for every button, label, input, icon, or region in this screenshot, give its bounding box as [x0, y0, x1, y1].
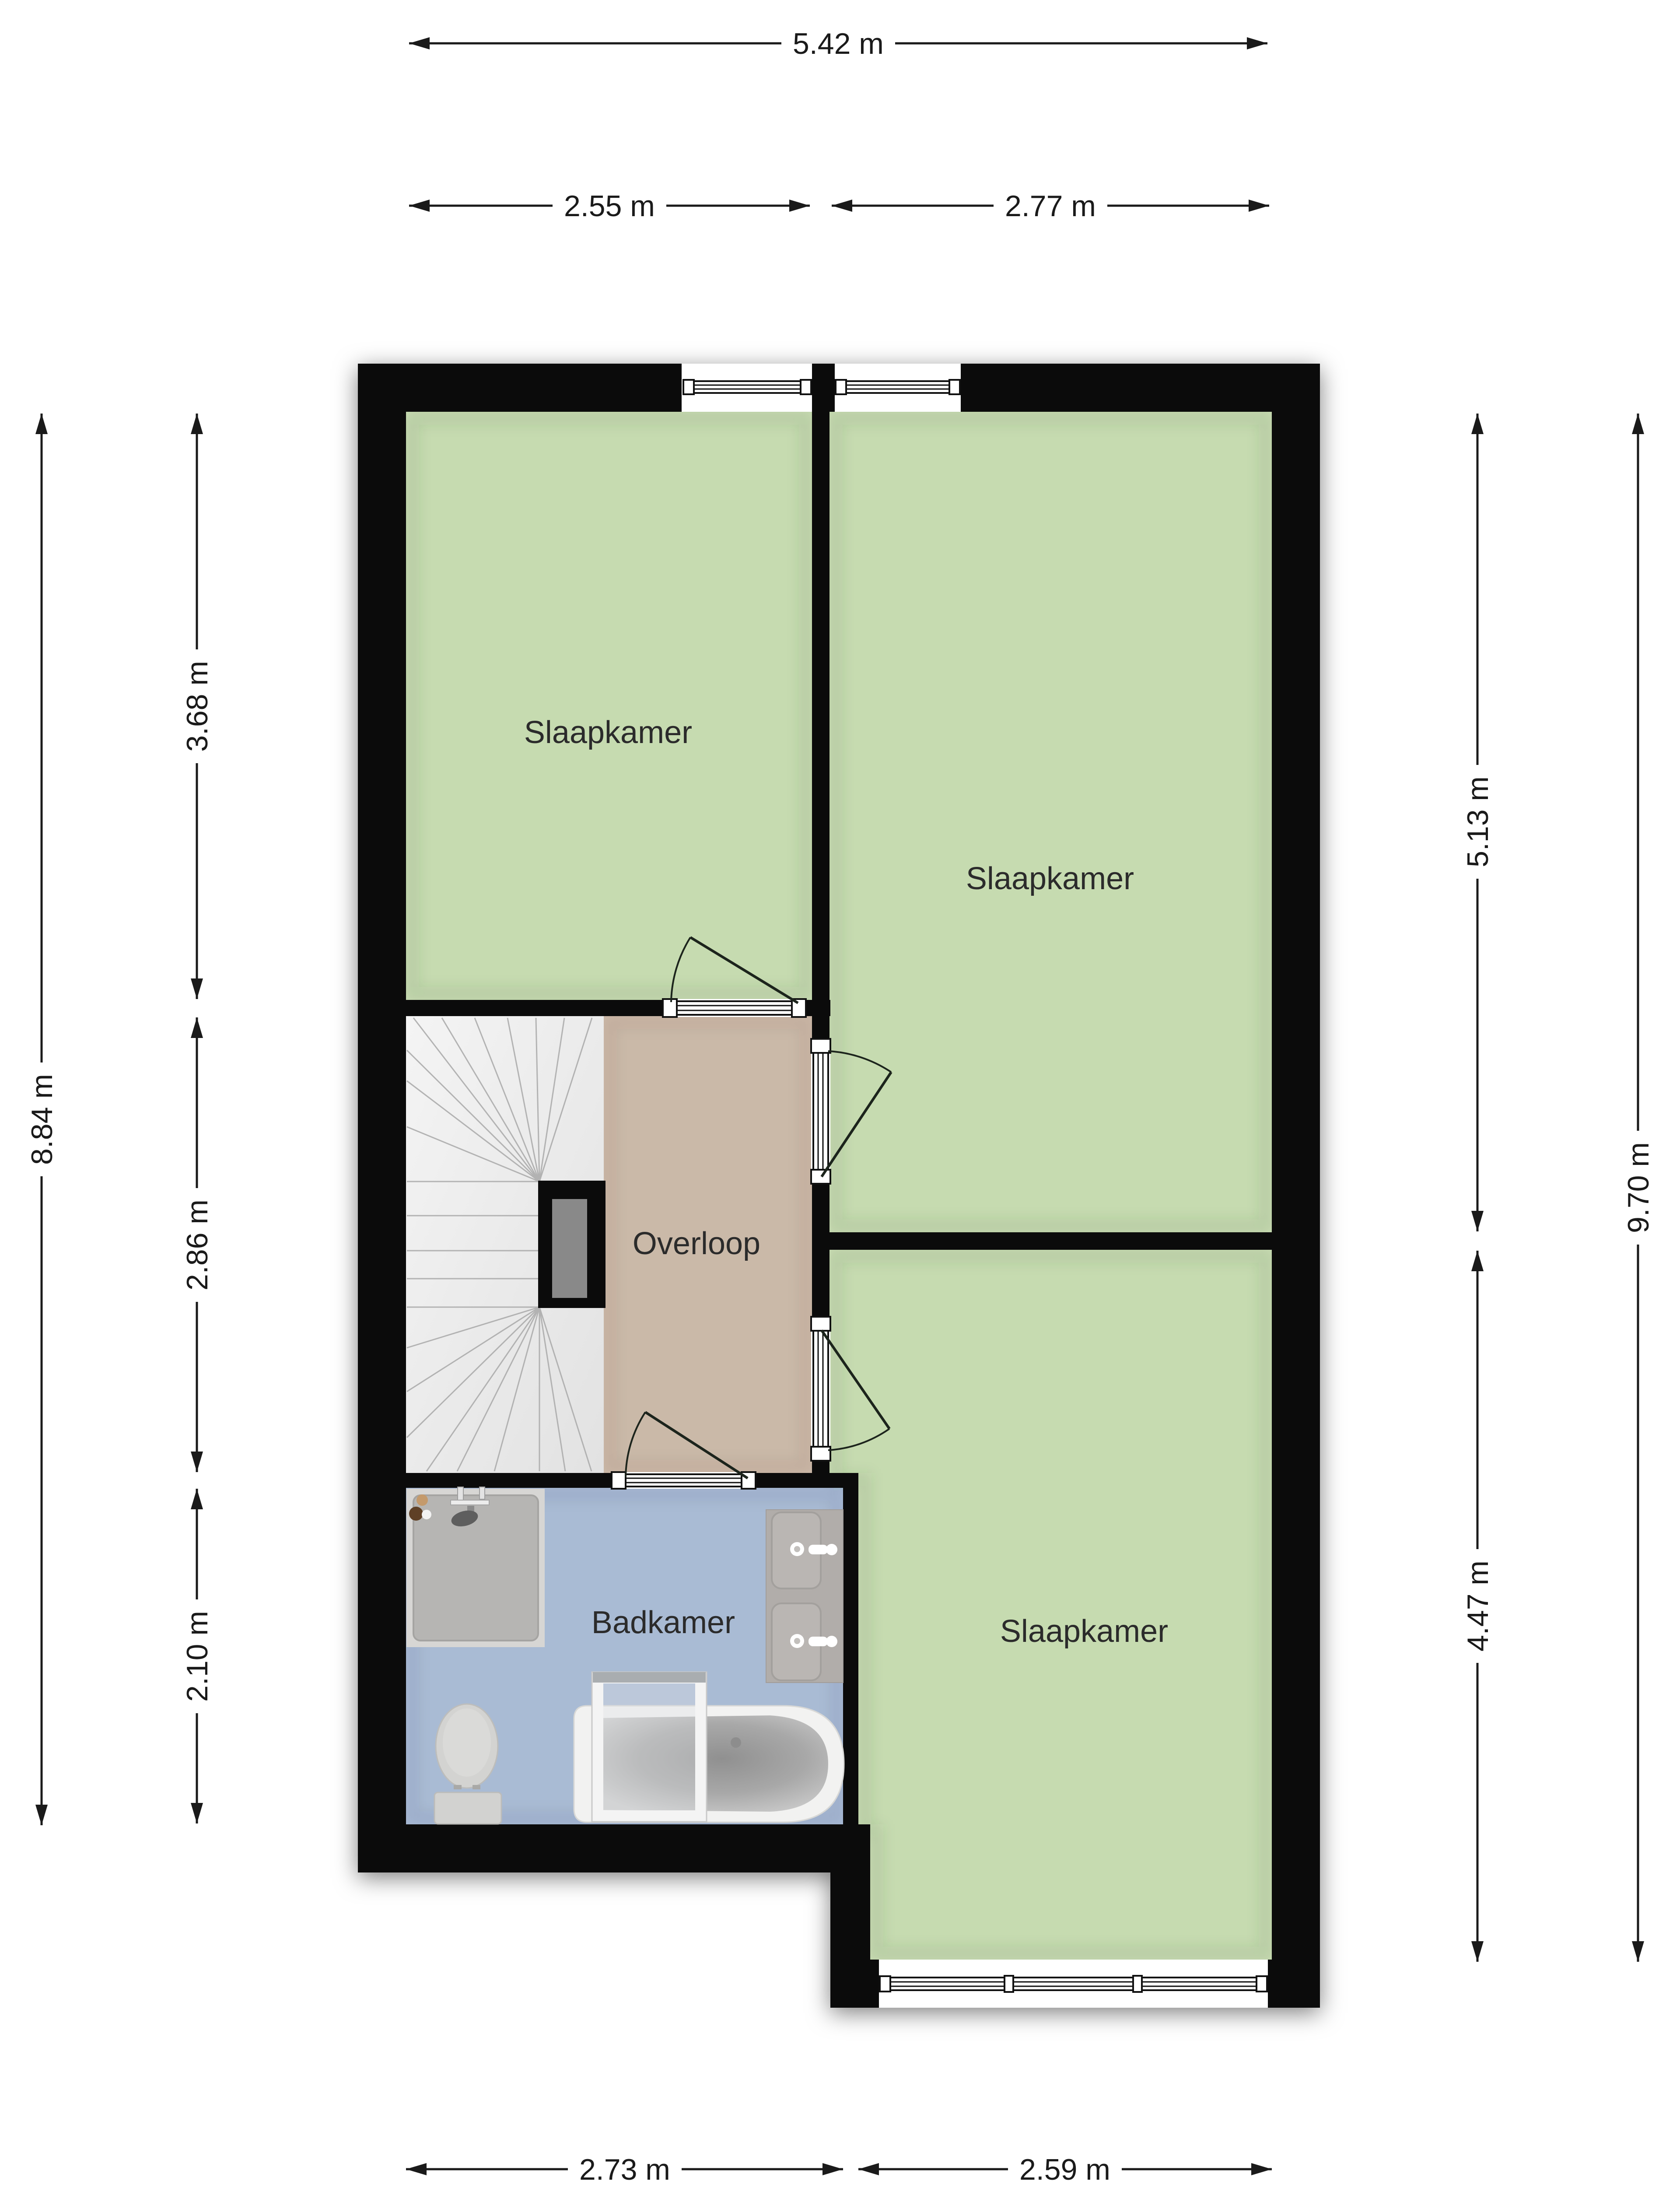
svg-text:5.13 m: 5.13 m — [1461, 776, 1494, 867]
svg-text:Overloop: Overloop — [633, 1226, 760, 1261]
svg-text:Slaapkamer: Slaapkamer — [524, 715, 692, 750]
svg-text:Badkamer: Badkamer — [591, 1605, 735, 1640]
svg-text:Slaapkamer: Slaapkamer — [1000, 1614, 1168, 1649]
svg-text:8.84 m: 8.84 m — [25, 1074, 59, 1165]
svg-text:2.59 m: 2.59 m — [1019, 2153, 1110, 2186]
svg-text:3.68 m: 3.68 m — [181, 661, 214, 752]
svg-text:4.47 m: 4.47 m — [1461, 1560, 1494, 1652]
svg-text:Slaapkamer: Slaapkamer — [966, 861, 1134, 896]
svg-text:2.10 m: 2.10 m — [181, 1611, 214, 1702]
svg-text:2.77 m: 2.77 m — [1005, 189, 1096, 223]
svg-text:2.73 m: 2.73 m — [579, 2153, 670, 2186]
svg-text:5.42 m: 5.42 m — [793, 27, 884, 60]
svg-text:9.70 m: 9.70 m — [1622, 1142, 1655, 1233]
svg-text:2.55 m: 2.55 m — [564, 189, 655, 223]
svg-text:2.86 m: 2.86 m — [181, 1199, 214, 1290]
